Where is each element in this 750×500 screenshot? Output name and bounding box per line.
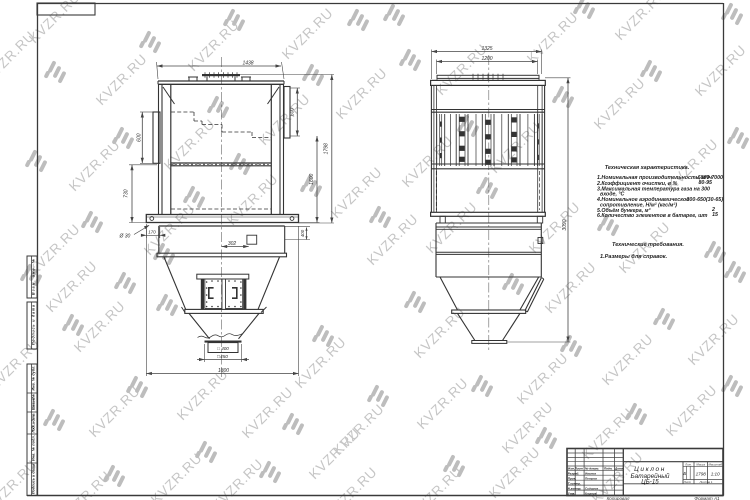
svg-text:Лист: Лист (683, 480, 692, 484)
svg-text:Дата: Дата (614, 467, 624, 471)
svg-text:Подпись и дата: Подпись и дата (32, 464, 36, 494)
svg-text:Т.контр.: Т.контр. (568, 482, 581, 486)
svg-text:1798: 1798 (696, 471, 707, 476)
svg-text:400: 400 (300, 229, 305, 237)
svg-text:Подпись и дата: Подпись и дата (32, 305, 36, 345)
svg-text:□450: □450 (217, 354, 228, 360)
svg-text:Лит.: Лит. (684, 462, 692, 466)
svg-text:1.Размеры для справок.: 1.Размеры для справок. (600, 254, 668, 260)
svg-text:Формат А1: Формат А1 (694, 496, 720, 500)
svg-text:Масса: Масса (696, 462, 705, 466)
svg-text:□ 400: □ 400 (217, 346, 229, 351)
svg-text:Листов 1: Листов 1 (699, 480, 713, 484)
svg-text:1438: 1438 (242, 61, 253, 67)
svg-text:Подп.: Подп. (604, 467, 613, 471)
svg-text:730: 730 (124, 189, 130, 198)
svg-text:Взам. инв.№: Взам. инв.№ (32, 394, 36, 410)
svg-text:600: 600 (290, 108, 296, 117)
svg-text:Изм.Лист: Изм.Лист (568, 467, 583, 471)
svg-text:1600: 1600 (309, 173, 315, 184)
svg-text:Техническая характеристика.: Техническая характеристика. (605, 165, 690, 171)
svg-text:№ докум.: № докум. (585, 467, 599, 471)
svg-text:Технические требования.: Технические требования. (612, 241, 684, 248)
svg-text:1:10: 1:10 (711, 471, 720, 476)
svg-text:15: 15 (712, 212, 719, 218)
svg-text:Петров: Петров (585, 477, 597, 481)
svg-text:6.Количество элементов в ба: 6.Количество элементов в батарее, шт (597, 212, 708, 219)
svg-text:1800: 1800 (218, 368, 229, 374)
svg-text:1325: 1325 (481, 46, 492, 52)
svg-text:Взам. инв. №: Взам. инв. № (32, 259, 36, 295)
svg-text:Масштаб: Масштаб (708, 462, 722, 466)
svg-text:Инв. № подл.: Инв. № подл. (32, 435, 36, 461)
svg-text:Климов: Климов (585, 491, 597, 495)
svg-text:Ø 30: Ø 30 (119, 234, 131, 240)
svg-text:3090: 3090 (562, 219, 568, 230)
svg-text:1798: 1798 (324, 143, 330, 154)
svg-text:Н.контр.: Н.контр. (568, 486, 582, 490)
svg-text:Сидоров: Сидоров (585, 486, 598, 490)
svg-text:600: 600 (137, 133, 143, 142)
svg-text:170: 170 (148, 230, 156, 235)
svg-text:300-650(30-65): 300-650(30-65) (686, 197, 723, 203)
svg-text:Иванов: Иванов (585, 472, 596, 476)
svg-text:300: 300 (701, 187, 710, 193)
svg-text:Копировал: Копировал (607, 496, 630, 500)
svg-text:ЦБ-15: ЦБ-15 (641, 478, 659, 485)
svg-text:Пров.: Пров. (568, 477, 577, 481)
svg-text:Разраб.: Разраб. (568, 472, 580, 476)
svg-text:302: 302 (228, 241, 237, 247)
svg-text:80-95: 80-95 (698, 180, 713, 186)
svg-text:Подп. и дата: Подп. и дата (32, 414, 36, 433)
svg-text:1200: 1200 (481, 56, 492, 62)
svg-text:Инв. № дубл.: Инв. № дубл. (32, 366, 36, 391)
svg-text:Утв.: Утв. (568, 491, 576, 495)
svg-text:Б: Б (683, 471, 686, 476)
